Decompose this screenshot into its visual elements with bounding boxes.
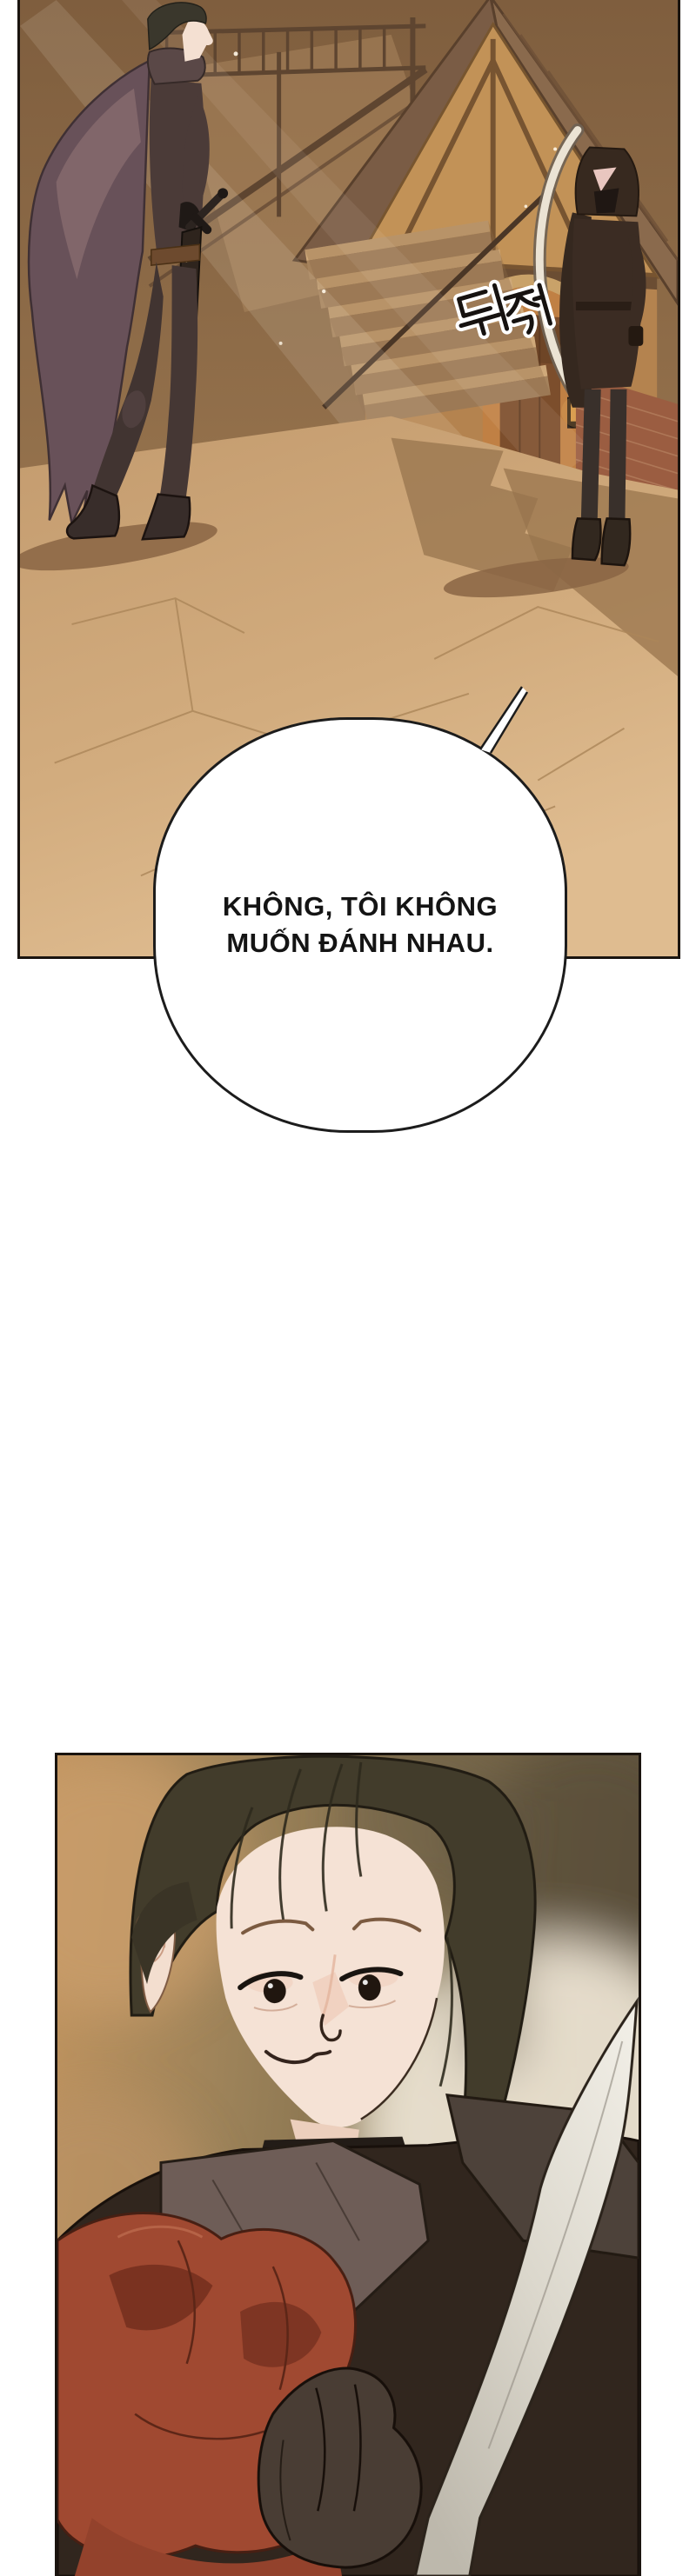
assassin-leg-left [581,389,601,521]
dialogue-line-1: KHÔNG, TÔI KHÔNG [156,889,565,925]
assassin-boot-right [602,518,630,565]
panel-closeup-scene [55,1753,641,2576]
assassin-leg-right [609,389,627,521]
assassin-glove [628,326,643,346]
webtoon-page: 뒤적 KHÔNG, TÔI KHÔNG MUỐN ĐÁNH NHAU. [0,0,696,2576]
assassin-belt [576,302,636,310]
closeup-art [57,1755,639,2576]
speech-bubble-tail [468,676,546,759]
speech-bubble: KHÔNG, TÔI KHÔNG MUỐN ĐÁNH NHAU. [153,717,567,1133]
dialogue-line-2: MUỐN ĐÁNH NHAU. [156,925,565,962]
assassin-boot-left [572,518,600,560]
dialogue-text: KHÔNG, TÔI KHÔNG MUỐN ĐÁNH NHAU. [156,889,565,962]
